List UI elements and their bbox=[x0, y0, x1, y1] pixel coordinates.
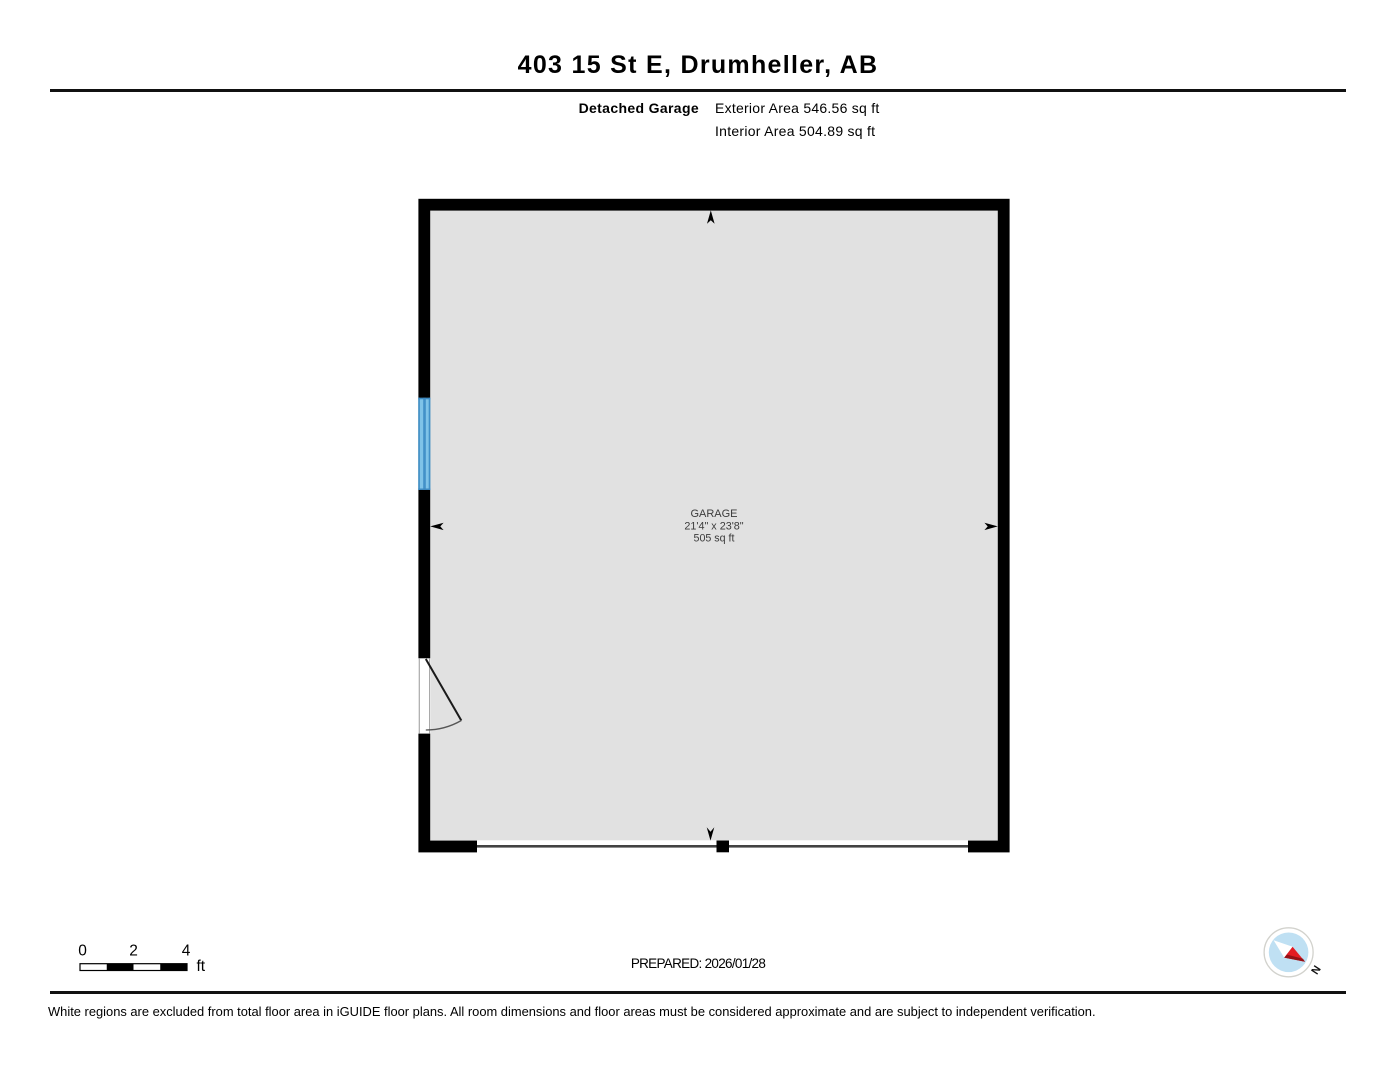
svg-text:GARAGE: GARAGE bbox=[690, 508, 737, 520]
svg-text:21'4" x 23'8": 21'4" x 23'8" bbox=[684, 520, 743, 532]
svg-text:505 sq ft: 505 sq ft bbox=[694, 533, 735, 545]
